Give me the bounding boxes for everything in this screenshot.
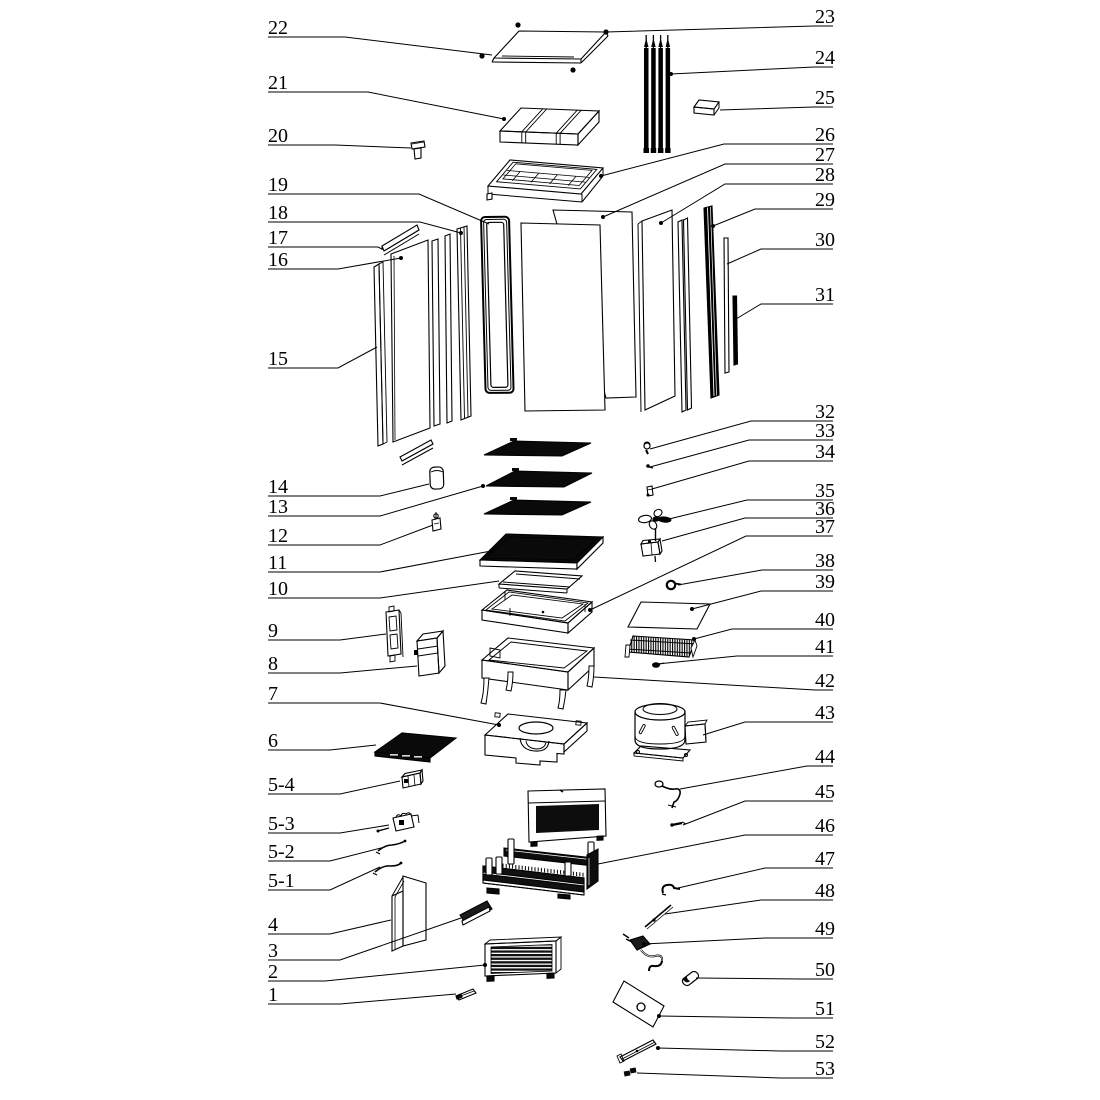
svg-text:24: 24 [815,47,835,69]
svg-text:34: 34 [815,441,835,463]
svg-text:9: 9 [268,620,278,642]
svg-text:44: 44 [815,746,835,768]
svg-text:17: 17 [268,227,288,249]
svg-text:14: 14 [268,476,288,498]
svg-text:19: 19 [268,174,288,196]
svg-text:4: 4 [268,914,278,936]
svg-text:5-1: 5-1 [268,870,295,892]
svg-text:5-3: 5-3 [268,813,295,835]
svg-text:5-4: 5-4 [268,774,295,796]
svg-text:11: 11 [268,552,287,574]
svg-text:23: 23 [815,6,835,28]
svg-text:25: 25 [815,87,835,109]
svg-text:2: 2 [268,961,278,983]
svg-text:12: 12 [268,525,288,547]
svg-text:47: 47 [815,848,835,870]
svg-text:31: 31 [815,284,835,306]
svg-text:37: 37 [815,516,835,538]
svg-text:49: 49 [815,918,835,940]
svg-text:29: 29 [815,189,835,211]
svg-text:3: 3 [268,940,278,962]
svg-text:13: 13 [268,496,288,518]
svg-text:52: 52 [815,1031,835,1053]
svg-text:39: 39 [815,571,835,593]
svg-text:33: 33 [815,420,835,442]
svg-text:8: 8 [268,653,278,675]
svg-text:41: 41 [815,636,835,658]
svg-text:46: 46 [815,815,835,837]
svg-text:10: 10 [268,578,288,600]
svg-text:7: 7 [268,683,278,705]
svg-text:6: 6 [268,730,278,752]
svg-text:27: 27 [815,144,835,166]
svg-text:18: 18 [268,202,288,224]
svg-text:53: 53 [815,1058,835,1080]
svg-text:43: 43 [815,702,835,724]
svg-text:15: 15 [268,348,288,370]
svg-text:1: 1 [268,984,278,1006]
svg-text:5-2: 5-2 [268,841,295,863]
svg-text:20: 20 [268,125,288,147]
svg-text:21: 21 [268,72,288,94]
svg-text:45: 45 [815,781,835,803]
svg-text:28: 28 [815,164,835,186]
svg-text:22: 22 [268,17,288,39]
svg-text:40: 40 [815,609,835,631]
svg-text:48: 48 [815,880,835,902]
svg-text:42: 42 [815,670,835,692]
svg-text:51: 51 [815,998,835,1020]
svg-text:50: 50 [815,959,835,981]
svg-text:16: 16 [268,249,288,271]
svg-text:26: 26 [815,124,835,146]
svg-text:30: 30 [815,229,835,251]
svg-text:38: 38 [815,550,835,572]
